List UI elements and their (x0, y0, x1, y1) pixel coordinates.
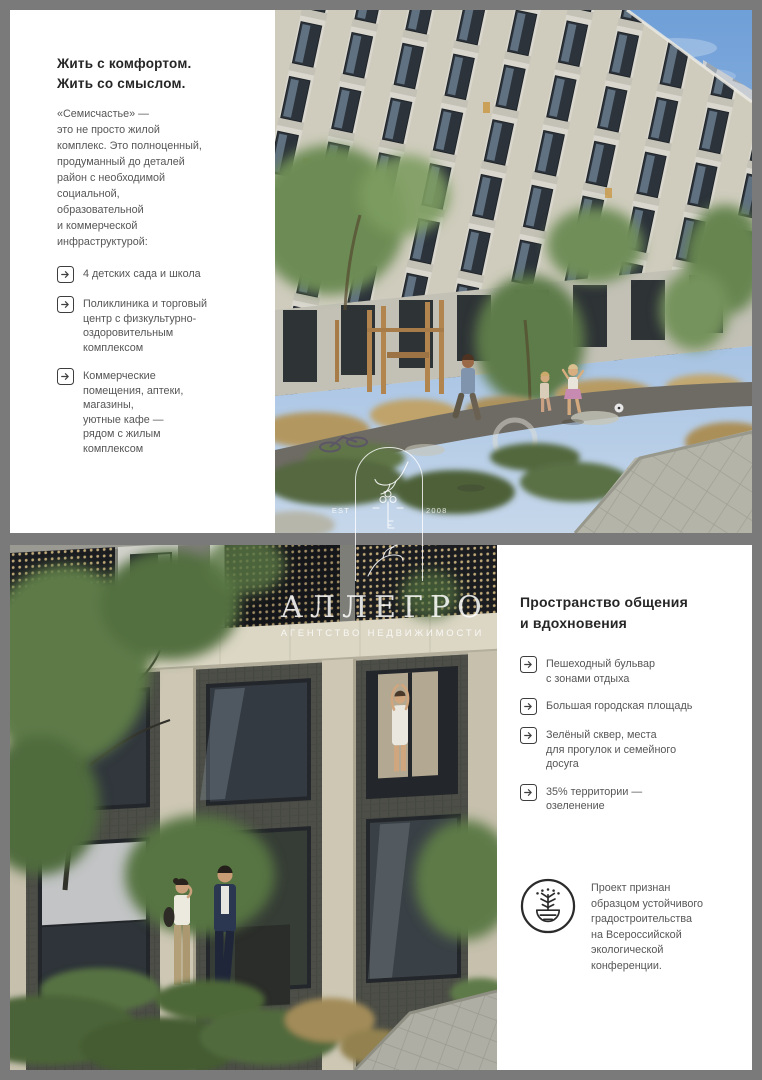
bottom-panel: Пространство общения и вдохновения Пешех… (10, 545, 752, 1070)
bottom-heading: Пространство общения и вдохновения (520, 592, 735, 634)
list-item: Зелёный сквер, места для прогулок и семе… (520, 727, 735, 772)
arrow-right-box-icon (520, 784, 537, 801)
top-bullet-list: 4 детских сада и школа Поликлиника и тор… (57, 266, 242, 456)
arrow-right-box-icon (57, 368, 74, 385)
top-heading: Жить с комфортом. Жить со смыслом. (57, 54, 242, 94)
award-note: Проект признан образцом устойчивого град… (520, 878, 745, 974)
list-item: 35% территории — озеленение (520, 784, 735, 814)
bullet-text: Пешеходный бульвар с зонами отдыха (546, 656, 655, 686)
bullet-text: Поликлиника и торговый центр с физкульту… (83, 296, 207, 355)
street-render-photo (10, 545, 497, 1070)
top-intro-paragraph: «Семисчастье» — это не просто жилой комп… (57, 106, 242, 250)
bullet-text: 35% территории — озеленение (546, 784, 642, 814)
list-item: Большая городская площадь (520, 698, 735, 715)
page-frame: Жить с комфортом. Жить со смыслом. «Семи… (0, 0, 762, 1080)
arrow-right-box-icon (520, 727, 537, 744)
award-text: Проект признан образцом устойчивого град… (591, 878, 703, 974)
bullet-text: 4 детских сада и школа (83, 266, 201, 283)
list-item: Пешеходный бульвар с зонами отдыха (520, 656, 735, 686)
bullet-text: Коммерческие помещения, аптеки, магазины… (83, 368, 183, 456)
bullet-text: Зелёный сквер, места для прогулок и семе… (546, 727, 676, 772)
arrow-right-box-icon (57, 296, 74, 313)
eco-award-medal-icon (520, 878, 576, 934)
bottom-text-column: Пространство общения и вдохновения Пешех… (520, 592, 735, 826)
arrow-right-box-icon (520, 698, 537, 715)
list-item: Поликлиника и торговый центр с физкульту… (57, 296, 242, 355)
arrow-right-box-icon (57, 266, 74, 283)
arrow-right-box-icon (520, 656, 537, 673)
list-item: Коммерческие помещения, аптеки, магазины… (57, 368, 242, 456)
top-text-column: Жить с комфортом. Жить со смыслом. «Семи… (57, 54, 242, 469)
bottom-bullet-list: Пешеходный бульвар с зонами отдыха Больш… (520, 656, 735, 814)
courtyard-render-photo (275, 10, 752, 533)
bullet-text: Большая городская площадь (546, 698, 692, 715)
top-panel: Жить с комфортом. Жить со смыслом. «Семи… (10, 10, 752, 533)
list-item: 4 детских сада и школа (57, 266, 242, 283)
